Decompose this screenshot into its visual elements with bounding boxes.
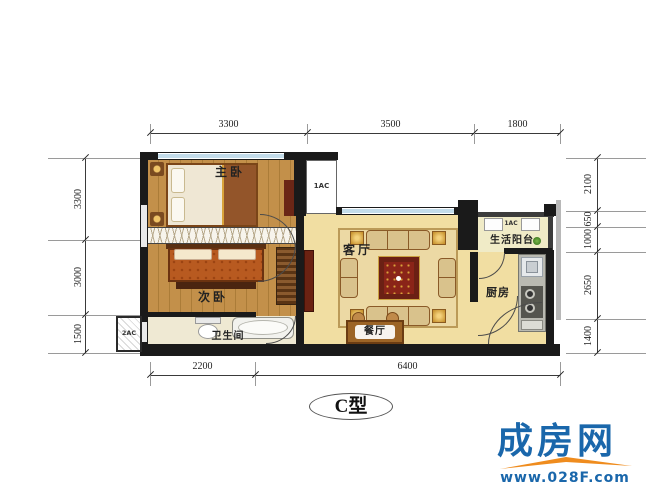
extension-line bbox=[566, 252, 646, 253]
balcony-railing bbox=[548, 212, 553, 252]
ac-label-shaft: 1AC bbox=[306, 182, 337, 190]
wall bbox=[546, 250, 554, 344]
dim-label-right-3: 2650 bbox=[583, 256, 595, 314]
dim-label-bottom-1: 6400 bbox=[379, 361, 436, 373]
side-table bbox=[432, 231, 446, 245]
stove-burner bbox=[525, 289, 535, 299]
extension-line bbox=[48, 158, 140, 159]
pillow bbox=[171, 168, 185, 193]
extension-line bbox=[474, 124, 475, 144]
extension-line bbox=[560, 124, 561, 144]
tv-cabinet bbox=[304, 250, 314, 312]
window bbox=[141, 205, 147, 247]
sink-basin bbox=[526, 261, 538, 273]
extension-line bbox=[566, 353, 646, 354]
floor-plan-canvas: 主卧 次卧 卫生间 客厅 餐厅 厨房 生活阳台 1AC 1AC 2AC 3300… bbox=[0, 0, 650, 487]
extension-line bbox=[48, 353, 140, 354]
ac-label-balcony: 1AC bbox=[499, 220, 523, 227]
sofa bbox=[340, 258, 358, 298]
teapot bbox=[396, 276, 401, 281]
room-label-kitchen: 厨房 bbox=[474, 286, 522, 300]
dim-label-top-0: 3300 bbox=[200, 119, 257, 131]
wall bbox=[296, 312, 304, 344]
extension-line bbox=[307, 124, 308, 144]
pillow bbox=[218, 249, 256, 260]
extension-line bbox=[566, 211, 646, 212]
room-label-bathroom: 卫生间 bbox=[196, 330, 260, 344]
wall bbox=[148, 312, 256, 317]
dim-label-left-2: 1500 bbox=[73, 305, 85, 363]
extension-line bbox=[48, 315, 140, 316]
dimension-line-bottom bbox=[150, 375, 560, 376]
dim-label-top-1: 3500 bbox=[362, 119, 419, 131]
exterior-wall-edge bbox=[556, 200, 561, 320]
dim-label-left-0: 3300 bbox=[73, 170, 85, 228]
room-label-master-bedroom: 主卧 bbox=[200, 165, 260, 179]
extension-line bbox=[566, 227, 646, 228]
dim-label-bottom-0: 2200 bbox=[174, 361, 231, 373]
type-label: C型 bbox=[309, 393, 393, 420]
nightstand-lamp bbox=[150, 162, 164, 176]
dimension-line-top bbox=[150, 133, 560, 134]
wall bbox=[294, 152, 306, 216]
extension-line bbox=[150, 124, 151, 144]
dim-label-top-2: 1800 bbox=[489, 119, 546, 131]
dim-label-right-4: 1400 bbox=[583, 307, 595, 365]
sofa bbox=[438, 258, 456, 298]
pillow bbox=[174, 249, 212, 260]
watermark-url: www.028F.com bbox=[497, 470, 633, 486]
watermark-brand: 成房网 bbox=[497, 423, 637, 461]
wall bbox=[504, 248, 552, 254]
ac-label-side: 2AC bbox=[116, 329, 142, 337]
dimension-line-left bbox=[85, 158, 86, 353]
side-table bbox=[432, 309, 446, 323]
extension-line bbox=[566, 319, 646, 320]
pillow bbox=[171, 197, 185, 222]
room-label-second-bedroom: 次卧 bbox=[183, 290, 243, 304]
toilet-tank bbox=[195, 317, 221, 324]
wall bbox=[458, 200, 478, 250]
bed-bench bbox=[176, 282, 256, 289]
window bbox=[158, 153, 284, 159]
extension-line bbox=[48, 240, 140, 241]
washing-machine bbox=[521, 218, 540, 231]
balcony-railing bbox=[478, 212, 554, 217]
dimension-line-right bbox=[597, 158, 598, 353]
watermark-logo: 成房网 www.028F.com bbox=[497, 423, 637, 486]
extension-line bbox=[566, 158, 646, 159]
window bbox=[342, 208, 454, 214]
wall bbox=[140, 344, 560, 356]
room-label-living-room: 客厅 bbox=[330, 243, 386, 257]
room-label-dining-room: 餐厅 bbox=[355, 325, 395, 339]
wall bbox=[296, 216, 304, 318]
dim-label-left-1: 3000 bbox=[73, 248, 85, 306]
room-label-balcony: 生活阳台 bbox=[478, 234, 546, 248]
nightstand-lamp bbox=[150, 212, 164, 226]
